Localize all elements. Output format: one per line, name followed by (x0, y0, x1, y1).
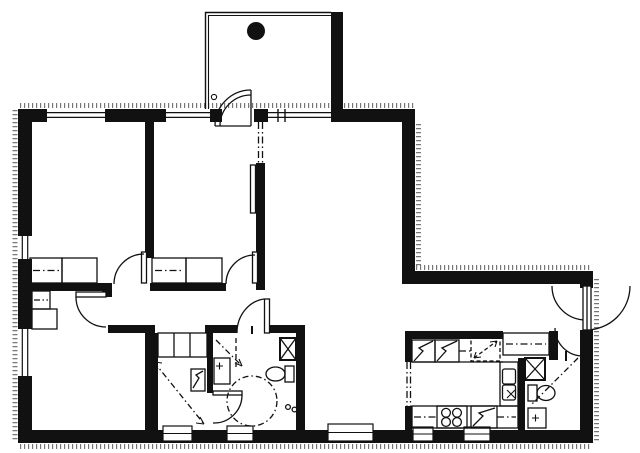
wall-bottom (18, 430, 593, 443)
room-dining: Dining area (305, 284, 405, 430)
wall-bed3-sauna (145, 333, 158, 430)
room-bedroom-2: Bedroom 2 (154, 122, 256, 258)
wall-kitchen-top (405, 331, 503, 339)
room-hall: Hall (112, 291, 305, 325)
wall-bed1-bed2 (145, 122, 154, 258)
wardrobe (152, 258, 222, 283)
kitchen-pass-through (407, 362, 411, 406)
wc-door (555, 328, 583, 361)
window (268, 109, 331, 122)
room-balcony: Balcony (209, 16, 331, 109)
room-regions: Balcony Bedroom 1 Bedroom 2 Living room … (32, 16, 580, 430)
room-sauna: Sauna (158, 357, 207, 430)
room-wc: WC (525, 360, 580, 430)
room-bathroom: Bathroom (213, 333, 296, 430)
window (166, 109, 210, 122)
wall-living-right (402, 122, 415, 277)
balcony-side-wall (331, 12, 343, 122)
room-entry: Entry (415, 284, 580, 331)
window (18, 329, 32, 376)
wall-bath-right (296, 333, 305, 430)
floor-plan: Balcony Bedroom 1 Bedroom 2 Living room … (0, 0, 640, 453)
balcony-door-opening (222, 109, 254, 122)
room-kitchen: Kitchen (412, 339, 518, 430)
wardrobe (30, 258, 97, 283)
window (18, 236, 32, 259)
wall-kitchen-wc (518, 358, 525, 443)
room-bedroom-1: Bedroom 1 (32, 122, 145, 258)
hall-closets (158, 333, 207, 357)
wall-entry-top (402, 271, 593, 284)
window (47, 109, 105, 122)
wall-sauna-bath (207, 333, 213, 393)
room-living-room: Living room (265, 122, 402, 277)
